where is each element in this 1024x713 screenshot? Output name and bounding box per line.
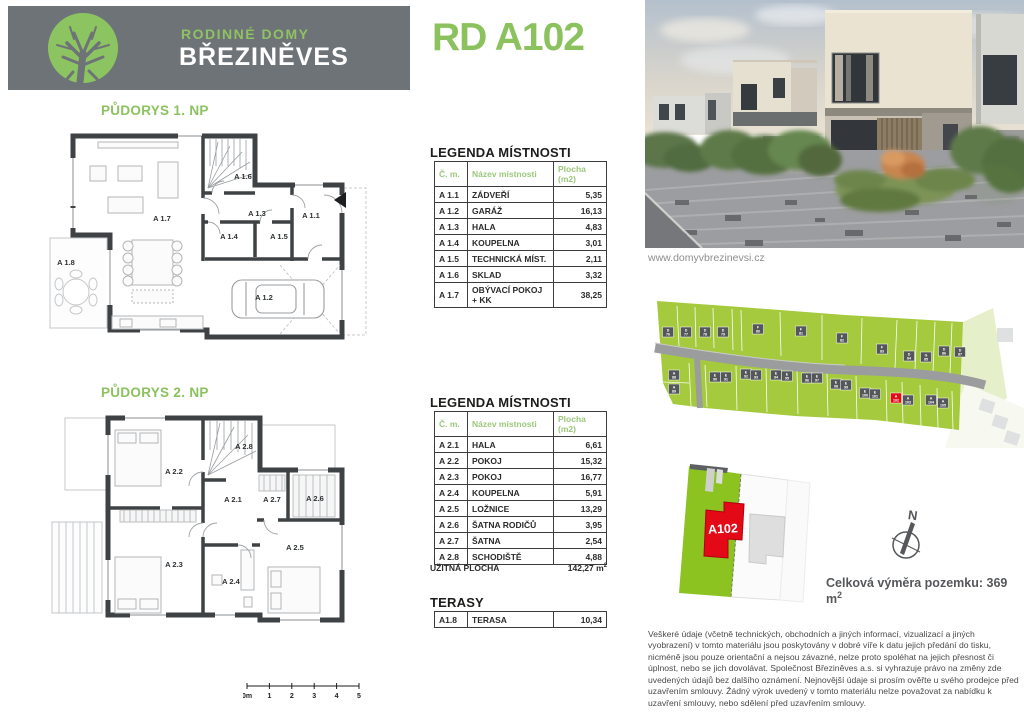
table-cell: 4,83	[554, 219, 607, 235]
svg-text:81: 81	[799, 332, 803, 336]
svg-text:82: 82	[840, 339, 844, 343]
tree-icon	[43, 9, 123, 89]
svg-text:78: 78	[703, 333, 707, 337]
compass-north-label: N	[907, 507, 918, 523]
table-cell: POKOJ	[468, 469, 554, 485]
table-row: A 2.6ŠATNA RODIČŮ3,95	[435, 517, 607, 533]
scale-bar: 0m12345	[243, 680, 373, 704]
svg-text:101: 101	[872, 395, 878, 399]
table-cell: A 2.5	[435, 501, 468, 517]
scale-label: 0m	[243, 693, 252, 700]
site-house-F82: F82	[837, 333, 848, 343]
plot-area-note: Celková výměra pozemku: 369 m2	[826, 576, 1024, 606]
table-cell: A 1.1	[435, 187, 468, 203]
room-label: A 1.5	[270, 232, 288, 241]
page-title: RD A102	[432, 16, 584, 60]
table-cell: A 1.6	[435, 267, 468, 283]
table-row: A 1.2GARÁŽ16,13	[435, 203, 607, 219]
site-house-A102: A102	[891, 393, 902, 403]
svg-text:79: 79	[721, 333, 725, 337]
svg-text:100: 100	[862, 394, 868, 398]
table-cell: A 2.3	[435, 469, 468, 485]
svg-text:76: 76	[666, 333, 670, 337]
svg-text:90: 90	[713, 378, 717, 382]
table-row: A 2.4KOUPELNA5,91	[435, 485, 607, 501]
table-row: A 2.1HALA6,61	[435, 437, 607, 453]
legal-disclaimer: Veškeré údaje (včetně technických, obcho…	[648, 629, 1022, 709]
table-cell: 3,32	[554, 267, 607, 283]
table-row: A 2.3POKOJ16,77	[435, 469, 607, 485]
a102-label: A102	[708, 521, 739, 537]
table-cell: 10,34	[554, 612, 607, 628]
room-label: A 1.7	[153, 214, 171, 223]
column-header: Č. m.	[435, 412, 468, 437]
site-house-E94: E94	[771, 370, 782, 380]
table-cell: 2,54	[554, 533, 607, 549]
site-house-A105: A105	[938, 398, 949, 408]
table-row: A 2.2POKOJ15,32	[435, 453, 607, 469]
site-house-E91: E91	[721, 372, 732, 382]
svg-text:92: 92	[744, 375, 748, 379]
room-label: A 1.6	[234, 172, 252, 181]
room-label: A 2.5	[286, 543, 304, 552]
room-label: A 1.2	[255, 293, 273, 302]
table-row: A 1.5TECHNICKÁ MÍST.2,11	[435, 251, 607, 267]
brochure-page: RODINNÉ DOMY BŘEZINĚVES RD A102	[0, 0, 1024, 713]
scale-label: 4	[335, 693, 339, 700]
room-label: A 2.4	[222, 577, 240, 586]
site-house-D77: D77	[681, 327, 692, 337]
site-house-E99: E99	[841, 380, 852, 390]
table-cell: KOUPELNA	[468, 235, 554, 251]
site-house-D76: D76	[663, 327, 674, 337]
table-cell: KOUPELNA	[468, 485, 554, 501]
table-cell: ZÁDVEŘÍ	[468, 187, 554, 203]
table-cell: A 2.2	[435, 453, 468, 469]
site-house-A88: A88	[669, 370, 680, 380]
table-cell: A 1.2	[435, 203, 468, 219]
table-row: A 2.7ŠATNA2,54	[435, 533, 607, 549]
table-row: A1.8TERASA10,34	[435, 612, 607, 628]
room-label: A 2.7	[263, 495, 281, 504]
site-house-F83: F83	[877, 344, 888, 354]
floor-plan-1: A 1.7A 1.6A 1.3A 1.1A 1.4A 1.5A 1.8A 1.2	[40, 100, 420, 365]
table-cell: ŠATNA	[468, 533, 554, 549]
site-house-E95: E95	[782, 371, 793, 381]
table-row: A 1.4KOUPELNA3,01	[435, 235, 607, 251]
svg-text:97: 97	[815, 379, 819, 383]
svg-text:104: 104	[928, 401, 934, 405]
table-cell: HALA	[468, 437, 554, 453]
site-house-E101: E101	[870, 389, 881, 399]
table-cell: A 2.7	[435, 533, 468, 549]
table-cell: A 1.3	[435, 219, 468, 235]
svg-text:91: 91	[724, 378, 728, 382]
column-header: Plocha (m2)	[554, 412, 607, 437]
site-house-G85: G85	[921, 352, 932, 362]
table-cell: 16,77	[554, 469, 607, 485]
room-label: A 1.3	[248, 209, 266, 218]
scale-label: 2	[290, 693, 294, 700]
site-house-A89: A89	[669, 384, 680, 394]
room-label: A 2.8	[235, 442, 253, 451]
compass-icon: N	[878, 505, 934, 567]
table-cell: A 1.4	[435, 235, 468, 251]
table-cell: A1.8	[435, 612, 468, 628]
svg-text:80: 80	[756, 330, 760, 334]
site-house-F81: F81	[796, 326, 807, 336]
column-header: Č. m.	[435, 162, 468, 187]
plan1-reflection: A 1.7A 1.6A 1.3A 1.1A 1.4A 1.5A 1.8A 1.2	[40, 363, 420, 397]
site-house-E93: E93	[751, 370, 762, 380]
room-label: A 2.6	[306, 494, 324, 503]
room-label: A 1.1	[302, 211, 320, 220]
site-house-F80: F80	[753, 324, 764, 334]
svg-text:96: 96	[805, 379, 809, 383]
svg-text:95: 95	[785, 377, 789, 381]
brand-header: RODINNÉ DOMY BŘEZINĚVES	[8, 6, 410, 90]
table-cell: 5,35	[554, 187, 607, 203]
room-label: A 1.4	[220, 232, 238, 241]
table-cell: A 2.6	[435, 517, 468, 533]
table-cell: OBÝVACÍ POKOJ + KK	[468, 283, 554, 308]
site-house-E98: E98	[831, 379, 842, 389]
svg-text:84: 84	[907, 357, 911, 361]
table-cell: 38,25	[554, 283, 607, 308]
table-cell: A 1.7	[435, 283, 468, 308]
column-header: Plocha (m2)	[554, 162, 607, 187]
table-cell: 6,61	[554, 437, 607, 453]
table-cell: 3,01	[554, 235, 607, 251]
room-label: A 2.2	[165, 467, 183, 476]
site-house-E97: E97	[812, 373, 823, 383]
table-row: A 1.7OBÝVACÍ POKOJ + KK38,25	[435, 283, 607, 308]
svg-text:77: 77	[684, 333, 688, 337]
table-cell: 16,13	[554, 203, 607, 219]
table-row: A 1.6SKLAD3,32	[435, 267, 607, 283]
site-house-D78: D78	[700, 327, 711, 337]
brand-line-2: BŘEZINĚVES	[179, 43, 349, 72]
legend1-table: Č. m.Název místnostiPlocha (m2)A 1.1ZÁDV…	[434, 161, 607, 308]
legend2-heading: LEGENDA MÍSTNOSTI	[430, 395, 571, 410]
house-render-photo	[645, 0, 1024, 248]
site-house-D79: D79	[718, 327, 729, 337]
site-house-E96: E96	[802, 373, 813, 383]
table-cell: HALA	[468, 219, 554, 235]
terasy-heading: TERASY	[430, 595, 484, 610]
scale-label: 1	[267, 693, 271, 700]
svg-text:99: 99	[844, 386, 848, 390]
floor-plan-2: A 2.2A 2.8A 2.1A 2.7A 2.6A 2.5A 2.3A 2.4	[40, 378, 420, 658]
table-cell: 2,11	[554, 251, 607, 267]
table-cell: 5,91	[554, 485, 607, 501]
room-label: A 2.1	[224, 495, 242, 504]
table-cell: ŠATNA RODIČŮ	[468, 517, 554, 533]
table-row: A 2.5LOŽNICE13,29	[435, 501, 607, 517]
svg-text:103: 103	[905, 401, 911, 405]
room-label: A 2.3	[165, 560, 183, 569]
svg-text:93: 93	[754, 376, 758, 380]
table-row: A 1.3HALA4,83	[435, 219, 607, 235]
svg-text:85: 85	[924, 358, 928, 362]
table-header-row: Č. m.Název místnostiPlocha (m2)	[435, 412, 607, 437]
site-house-D87: D87	[955, 347, 966, 357]
table-cell: GARÁŽ	[468, 203, 554, 219]
table-cell: TECHNICKÁ MÍST.	[468, 251, 554, 267]
brand-line-1: RODINNÉ DOMY	[181, 26, 309, 42]
table-row: A 1.1ZÁDVEŘÍ5,35	[435, 187, 607, 203]
table-header-row: Č. m.Název místnostiPlocha (m2)	[435, 162, 607, 187]
legend1-heading: LEGENDA MÍSTNOSTI	[430, 145, 571, 160]
table-cell: A 1.5	[435, 251, 468, 267]
table-cell: POKOJ	[468, 453, 554, 469]
table-cell: A 2.1	[435, 437, 468, 453]
svg-text:86: 86	[942, 352, 946, 356]
table-cell: 13,29	[554, 501, 607, 517]
scale-label: 3	[312, 693, 316, 700]
svg-text:98: 98	[834, 385, 838, 389]
column-header: Název místnosti	[468, 412, 554, 437]
site-house-A103: A103	[903, 395, 914, 405]
site-house-E90: E90	[710, 372, 721, 382]
table-cell: LOŽNICE	[468, 501, 554, 517]
table-cell: 3,95	[554, 517, 607, 533]
svg-text:105: 105	[940, 404, 946, 408]
svg-text:83: 83	[880, 350, 884, 354]
usable-area-row: UŽITNÁ PLOCHA 142,27 m2	[430, 563, 607, 573]
room-label: A 1.8	[57, 258, 75, 267]
table-cell: 15,32	[554, 453, 607, 469]
site-plan-map: D76D77D78D79F80F81F82F83D84G85D86D87A88A…	[645, 288, 1024, 450]
svg-text:89: 89	[672, 390, 676, 394]
svg-text:88: 88	[672, 376, 676, 380]
column-header: Název místnosti	[468, 162, 554, 187]
site-house-E92: E92	[741, 369, 752, 379]
svg-text:94: 94	[774, 376, 778, 380]
legend2-table: Č. m.Název místnostiPlocha (m2)A 2.1HALA…	[434, 411, 607, 565]
table-cell: A 2.4	[435, 485, 468, 501]
terasy-table: A1.8TERASA10,34	[434, 611, 607, 628]
scale-label: 5	[357, 693, 361, 700]
svg-text:102: 102	[893, 399, 899, 403]
site-house-D86: D86	[939, 346, 950, 356]
usable-area-value: 142,27 m2	[568, 563, 607, 573]
site-house-A104: A104	[926, 395, 937, 405]
website-caption: www.domyvbrezinevsi.cz	[648, 252, 765, 264]
site-house-D84: D84	[904, 351, 915, 361]
svg-text:87: 87	[958, 353, 962, 357]
site-house-E100: E100	[860, 388, 871, 398]
table-cell: TERASA	[468, 612, 554, 628]
usable-area-label: UŽITNÁ PLOCHA	[430, 563, 499, 573]
table-cell: SKLAD	[468, 267, 554, 283]
